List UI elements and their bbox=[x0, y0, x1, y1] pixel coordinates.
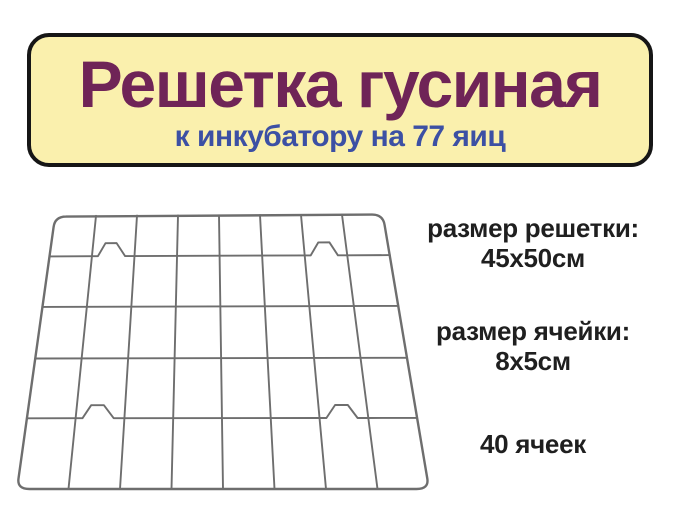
cell-count-text: 40 ячеек bbox=[402, 429, 664, 459]
spec-cell-size: размер ячейки: 8х5см bbox=[402, 316, 664, 376]
product-card: { "banner": { "title": "Решетка гусиная"… bbox=[0, 0, 678, 531]
spec-grid-size-value: 45x50см bbox=[402, 243, 664, 273]
spec-grid-size: размер решетки: 45x50см bbox=[402, 213, 664, 273]
spec-cell-size-label: размер ячейки: bbox=[402, 316, 664, 346]
spec-grid-size-label: размер решетки: bbox=[402, 213, 664, 243]
spec-cell-size-value: 8х5см bbox=[402, 346, 664, 376]
spec-list: размер решетки: 45x50см размер ячейки: 8… bbox=[402, 213, 664, 459]
